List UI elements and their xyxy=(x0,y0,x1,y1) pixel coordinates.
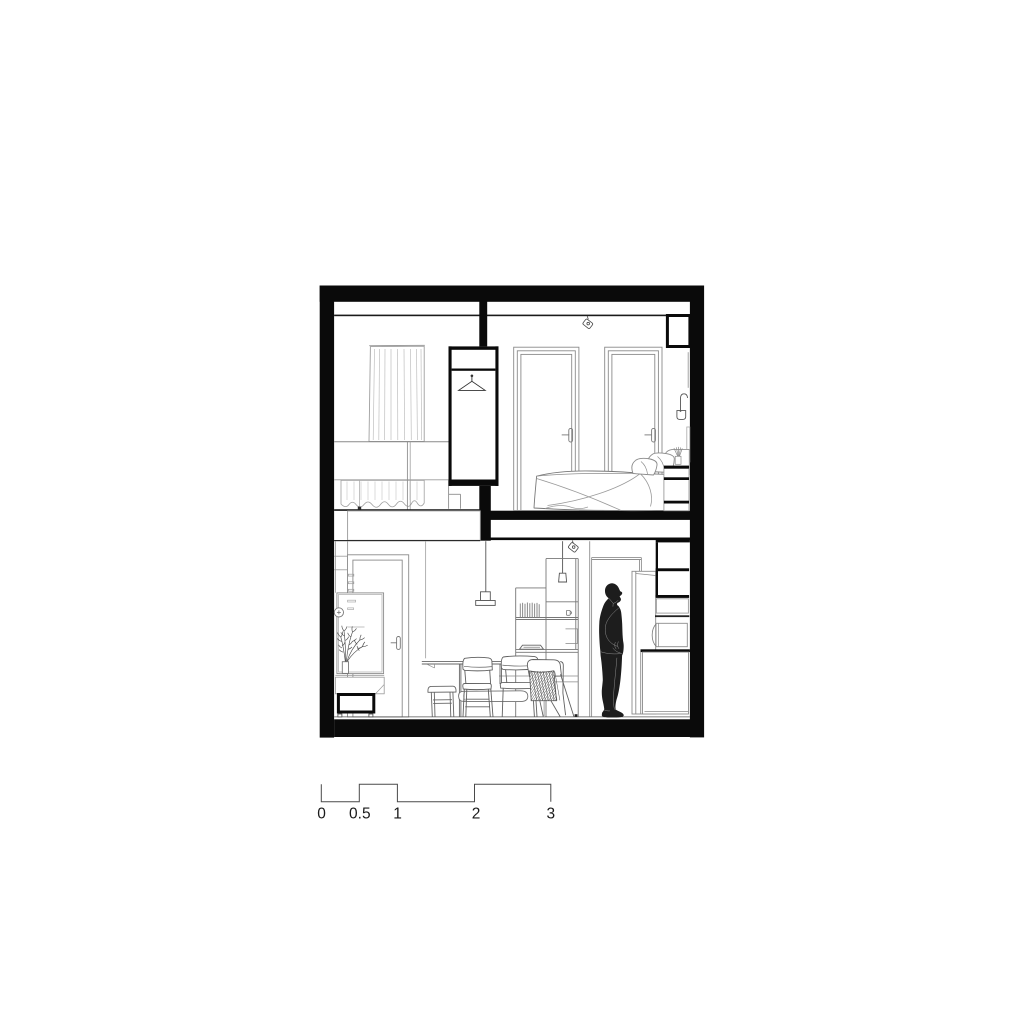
svg-text:0: 0 xyxy=(317,806,326,823)
svg-text:0.5: 0.5 xyxy=(349,806,371,823)
svg-text:1: 1 xyxy=(393,806,402,823)
svg-text:2: 2 xyxy=(472,806,481,823)
svg-text:3: 3 xyxy=(546,806,555,823)
